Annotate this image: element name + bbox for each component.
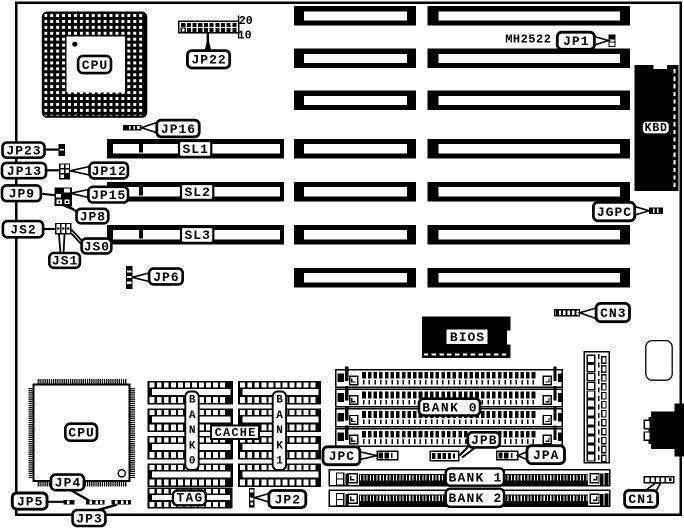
svg-text:JP22: JP22 [191, 53, 226, 68]
svg-text:BANK 0: BANK 0 [422, 400, 478, 415]
svg-text:JS1: JS1 [52, 254, 78, 269]
svg-text:JS0: JS0 [84, 239, 110, 254]
svg-text:KBD: KBD [645, 122, 668, 135]
svg-text:CN3: CN3 [600, 306, 626, 321]
svg-text:JP2: JP2 [275, 492, 301, 507]
svg-text:JP1: JP1 [563, 34, 589, 49]
svg-text:TAG: TAG [177, 492, 204, 506]
svg-text:JP6: JP6 [153, 270, 179, 285]
svg-text:JP3: JP3 [76, 511, 102, 526]
svg-text:10: 10 [238, 30, 252, 43]
svg-text:JP16: JP16 [161, 122, 196, 137]
svg-text:JP8: JP8 [80, 209, 106, 224]
svg-text:JP9: JP9 [9, 187, 35, 202]
svg-text:JGPC: JGPC [597, 205, 632, 220]
svg-text:JPC: JPC [329, 449, 355, 464]
svg-text:CACHE: CACHE [215, 426, 257, 440]
svg-text:BANK1: BANK1 [276, 395, 283, 468]
svg-text:BANK 1: BANK 1 [448, 470, 502, 485]
svg-text:SL3: SL3 [184, 228, 210, 243]
svg-text:MH2522: MH2522 [505, 33, 551, 47]
svg-text:CN1: CN1 [628, 492, 654, 507]
svg-text:JP23: JP23 [6, 143, 41, 158]
svg-text:JPB: JPB [471, 433, 497, 448]
svg-text:BIOS: BIOS [450, 330, 485, 345]
svg-text:JP12: JP12 [92, 164, 127, 179]
svg-text:CPU: CPU [82, 58, 108, 73]
svg-text:JP15: JP15 [91, 188, 126, 203]
svg-text:BANK0: BANK0 [189, 395, 196, 468]
svg-text:20: 20 [239, 15, 253, 28]
svg-text:CPU: CPU [68, 426, 94, 441]
svg-text:JP13: JP13 [7, 164, 42, 179]
svg-text:SL2: SL2 [184, 185, 210, 200]
svg-text:JS2: JS2 [10, 223, 36, 238]
svg-text:SL1: SL1 [182, 142, 208, 157]
svg-text:JP4: JP4 [55, 476, 81, 491]
svg-text:BANK 2: BANK 2 [448, 491, 502, 506]
svg-text:JPA: JPA [533, 448, 559, 463]
svg-text:JP5: JP5 [17, 494, 43, 509]
